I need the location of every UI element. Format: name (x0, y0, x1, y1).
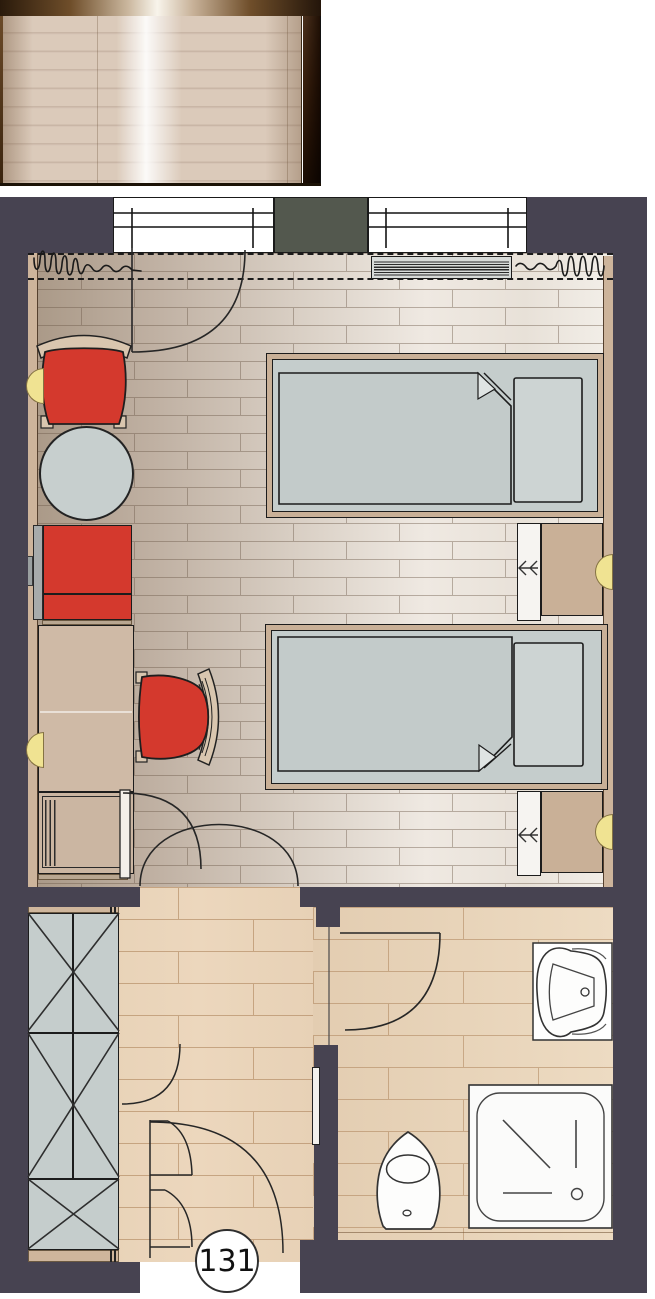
desk-chair-seat (139, 675, 208, 758)
bed-1-blanket (279, 373, 511, 504)
plan-linework (0, 0, 655, 1299)
curtain-left (34, 251, 141, 275)
bed-1-bedding (279, 373, 582, 504)
floor-plan: 131 (0, 0, 655, 1299)
shower (469, 1085, 612, 1228)
window-glazing-lines (113, 208, 527, 248)
armchair (37, 336, 131, 429)
washbasin-bowl-outline (537, 948, 606, 1037)
bedroom-door-swing (120, 790, 298, 886)
bathroom-door-swing (329, 927, 440, 1045)
toilet (377, 1132, 440, 1229)
room-number-badge: 131 (195, 1229, 259, 1293)
nightstand-1-arrow (519, 561, 538, 575)
nightstand-2-arrow (519, 828, 538, 842)
bed-2-bedding (278, 637, 583, 771)
room-number-label: 131 (198, 1244, 255, 1279)
washbasin (533, 943, 612, 1040)
desk-chair (136, 669, 219, 765)
hall-door-swings (122, 1044, 283, 1258)
bedroom-door-leaf (120, 790, 130, 878)
hall-mirror (312, 1067, 320, 1145)
bed-2-blanket (278, 637, 512, 771)
wardrobe-x-pattern (28, 913, 119, 1249)
balcony-door-swing (132, 248, 245, 352)
curtain-right (516, 256, 604, 276)
toilet-body (377, 1132, 440, 1229)
bed-1-pillow (514, 378, 582, 502)
bed-2-pillow (514, 643, 583, 766)
shower-tray (469, 1085, 612, 1228)
armchair-seat (42, 348, 126, 424)
